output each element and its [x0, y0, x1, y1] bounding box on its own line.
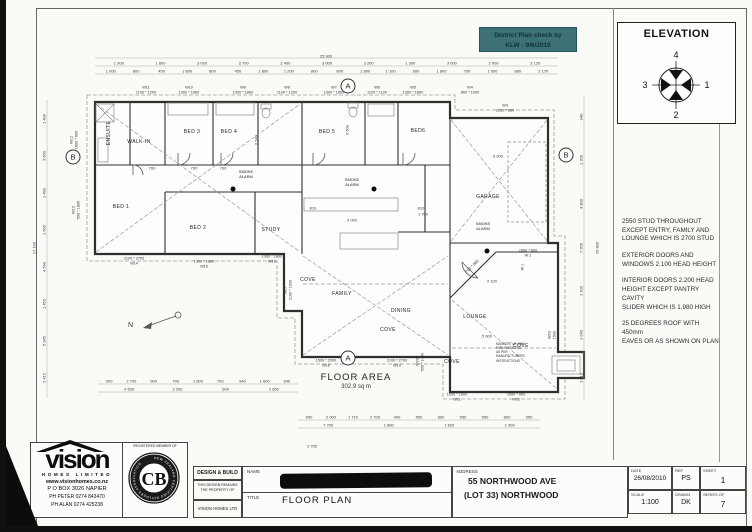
dimension-label: 2 705: [307, 444, 317, 449]
dimension-label: 900: [150, 379, 157, 384]
dimension-label: 1 600: [260, 379, 270, 384]
dimension-label: 540: [284, 379, 291, 384]
dimension-label: 3 600: [345, 125, 350, 135]
north-label: N: [128, 322, 133, 329]
drawing-title: FLOOR PLAN: [282, 495, 352, 506]
dimension-label: 25 900: [320, 54, 332, 59]
room-label: GARAGE: [476, 194, 500, 200]
dimension-label: 3 200: [364, 61, 374, 66]
dimension-label: 3 000: [447, 61, 457, 66]
dimension-label: 1 900: [505, 423, 515, 428]
dimension-label: 2 400: [280, 61, 290, 66]
room-label: BED 5: [319, 129, 335, 135]
window-label: 1500 * 2000 W18: [316, 358, 336, 367]
dimension-label: 810: [418, 206, 425, 211]
vision-phone-alan: PH ALAN 0274 425238: [32, 502, 122, 508]
room-label: ENSUITE: [106, 121, 112, 145]
dimension-label: 940: [579, 113, 584, 120]
date-value: 26/08/2010: [629, 475, 671, 482]
dimension-label: 800: [311, 69, 318, 74]
dimension-label: 1 000: [487, 69, 497, 74]
dimension-label: 2 000: [489, 61, 499, 66]
dimension-label: 600: [413, 69, 420, 74]
dimension-label: 3 120: [530, 61, 540, 66]
dimension-label: 450: [235, 69, 242, 74]
window-label: W9 1300 * 1800: [233, 85, 253, 94]
drawn-value: DK: [673, 499, 699, 506]
cb-monogram: CB: [141, 469, 166, 489]
room-label: BED6: [411, 128, 426, 134]
dimension-label: 3 600: [42, 150, 47, 160]
dimension-label: 1 000: [106, 69, 116, 74]
redacted-client-name: [280, 472, 432, 489]
series-cell: SERIES OF 7: [700, 490, 746, 514]
design-ownership-note: THIS DESIGN REMAINS THE PROPERTY OF: [193, 480, 242, 500]
window-label: W8 1100 * 1200: [277, 85, 297, 94]
floor-area-value: 302.9 sq m: [312, 384, 400, 390]
dimension-label: 790: [464, 69, 471, 74]
section-marker-a: A: [341, 79, 356, 94]
window-label: W11 1100 * 1200: [136, 85, 156, 94]
stamp-line2: KLW - 9/6/2010: [480, 41, 576, 51]
window-label: 1500 * 1500 W21: [447, 392, 467, 401]
address-line2: (LOT 33) NORTHWOOD: [464, 490, 558, 500]
dimension-label: 16 800: [595, 242, 600, 254]
dimension-label: 800: [209, 69, 216, 74]
dimension-label: 2 170: [538, 69, 548, 74]
dimension-label: 2 000: [326, 415, 336, 420]
window-label: W12 1800 * 600: [69, 131, 78, 149]
dimension-label: 2 540: [254, 135, 259, 145]
ref-value: PS: [673, 475, 699, 482]
dimension-label: 700: [217, 379, 224, 384]
room-label: WALK-IN: [127, 139, 150, 145]
address-label: ADDRESS: [456, 469, 478, 474]
window-label: 1300 * 1800 W16: [262, 254, 282, 263]
room-label: DINING: [391, 308, 411, 314]
dimension-label: 7 700: [323, 423, 333, 428]
dimension-label: 550: [482, 415, 489, 420]
vision-po-box: P O BOX 3026 NAPIER: [32, 486, 122, 492]
dimension-label: 2 700: [126, 379, 136, 384]
construction-notes: 2550 STUD THROUGHOUT EXCEPT ENTRY, FAMIL…: [622, 218, 722, 354]
dimension-label: 5 345: [42, 335, 47, 345]
vision-website: www.visionhomes.co.nz: [32, 479, 122, 485]
dimension-label: 17 190: [32, 242, 37, 254]
dimension-label: 1 800: [360, 69, 370, 74]
dimension-label: 7 205: [579, 242, 584, 252]
room-label: BED 1: [113, 204, 129, 210]
construction-note: INTERIOR DOORS 2.200 HEAD HEIGHT EXCEPT …: [622, 277, 722, 312]
dimension-label: 2 415: [42, 372, 47, 382]
sheet-label: SHEET: [703, 468, 716, 473]
scale-cell: SCALE 1:100: [628, 490, 672, 514]
dimension-label: 2 700: [370, 415, 380, 420]
smoke-alarm-dot: [372, 187, 377, 192]
elevation-number-left: 3: [642, 80, 647, 90]
dimension-label: 1 800: [193, 379, 203, 384]
window-label: W6 1100 * 1100: [367, 85, 387, 94]
window-label: W13 500 * 1800: [71, 201, 80, 219]
window-label: 1300 * 1800 W15: [194, 259, 214, 268]
dimension-label: 1 490: [42, 187, 47, 197]
sheet-value: 1: [701, 475, 745, 485]
scan-edge-bottom: [0, 526, 752, 532]
elevation-compass-icon: [618, 23, 735, 123]
floor-area-label: FLOOR AREA: [312, 372, 400, 383]
dimension-label: 2 650: [269, 387, 279, 392]
window-label: W20 500 * 1400: [415, 353, 424, 371]
construction-note: EXTERIOR DOORS AND WINDOWS 2.100 HEAD HE…: [622, 252, 722, 269]
window-label: 2100 * 2700 W14: [124, 256, 144, 265]
window-label: 1500 * 600 W 2: [519, 248, 537, 257]
series-label: SERIES OF: [703, 492, 724, 497]
room-label: COVE: [300, 277, 316, 283]
room-label: BED 2: [190, 225, 206, 231]
stamp-line1: District Plan check by: [480, 31, 576, 41]
dimension-label: 1 800: [384, 423, 394, 428]
district-plan-stamp: District Plan check by KLW - 9/6/2010: [479, 27, 577, 52]
dimension-label: 1 400: [42, 113, 47, 123]
certified-builders-logo: NEW ZEALAND CERTIFIED BUILDERS ASSOCIATI…: [128, 452, 180, 504]
dimension-label: 1 800: [182, 69, 192, 74]
section-marker-b: B: [66, 150, 81, 165]
smoke-alarm-dot: [231, 187, 236, 192]
vision-phone-peter: PH PETER 0274 843470: [32, 494, 122, 500]
window-label: W5 1300 * 1800: [403, 85, 423, 94]
registered-member-label: REGISTERED MEMBER OF: [124, 444, 186, 448]
dimension-label: 3 000: [197, 61, 207, 66]
smoke-alarm-label: SMOKE ALARM: [476, 221, 490, 231]
dimension-label: 1 200: [284, 69, 294, 74]
fireplace-note: MASPORT LE 4000 FIRE INSTALLED AS PER MA…: [496, 342, 528, 363]
ref-cell: REF PS: [672, 466, 700, 490]
drawn-label: DRAWN: [675, 492, 690, 497]
design-build-label: DESIGN & BUILD: [193, 466, 242, 480]
series-value: 7: [701, 499, 745, 509]
dimension-label: 540: [239, 379, 246, 384]
dimension-label: 4 000: [347, 218, 357, 223]
vision-logo-text: vision: [32, 446, 122, 472]
room-label: LOUNGE: [463, 314, 487, 320]
smoke-alarm-label: SMOKE ALARM: [239, 169, 253, 179]
room-label: COVE: [380, 327, 396, 333]
drawn-cell: DRAWN DK: [672, 490, 700, 514]
dimension-label: 3 200: [172, 387, 182, 392]
date-label: DATE: [631, 468, 641, 473]
room-label: BED 3: [184, 129, 200, 135]
dimension-label: 1 800: [155, 61, 165, 66]
room-label: COVE: [444, 359, 460, 365]
vision-subtitle: HOMES LIMITED: [32, 472, 122, 477]
dimension-label: 1 620: [444, 423, 454, 428]
dimension-label: 490: [394, 415, 401, 420]
name-title-divider: [242, 492, 452, 493]
dimension-label: 700: [172, 379, 179, 384]
dimension-label: 5 600: [482, 334, 492, 339]
dimension-label: 1 300: [405, 61, 415, 66]
dimension-label: 1 800: [436, 69, 446, 74]
window-label: W3 2100 * 860: [496, 103, 514, 112]
dimension-label: 5 900: [493, 154, 503, 159]
window-label: 2100 * 2700 W19: [387, 358, 407, 367]
elevation-number-bottom: 2: [673, 110, 678, 120]
date-cell: DATE 26/08/2010: [628, 466, 672, 490]
scale-value: 1:100: [629, 499, 671, 506]
elevation-number-right: 1: [704, 80, 709, 90]
window-label: W17 2100 * 1000: [283, 280, 292, 300]
dimension-label: 550: [460, 415, 467, 420]
floor-area-block: FLOOR AREA 302.9 sq m: [312, 372, 400, 390]
elevation-number-top: 4: [673, 50, 678, 60]
construction-note: 2550 STUD THROUGHOUT EXCEPT ENTRY, FAMIL…: [622, 218, 722, 244]
dimension-label: 1 800: [258, 69, 268, 74]
window-label: W4 800 * 1000: [461, 85, 479, 94]
dimension-label: 550: [526, 415, 533, 420]
smoke-alarm-dot: [485, 249, 490, 254]
section-marker-a: A: [341, 351, 356, 366]
ref-label: REF: [675, 468, 683, 473]
sheet-cell: SHEET 1: [700, 466, 746, 490]
dimension-label: 760: [220, 166, 227, 171]
name-label: NAME: [247, 469, 260, 474]
window-label: 1500 * 800 W22: [507, 392, 525, 401]
dimension-label: 760 * 960: [464, 258, 480, 274]
dimension-label: 1 200: [579, 286, 584, 296]
dimension-label: 900: [106, 379, 113, 384]
room-label: STUDY: [262, 227, 281, 233]
dimension-label: 800: [336, 69, 343, 74]
title-label: TITLE: [247, 495, 259, 500]
dimension-label: 800: [438, 415, 445, 420]
window-label: W 1: [521, 264, 526, 271]
dimension-label: 1 200: [579, 155, 584, 165]
dimension-label: 3 000: [322, 61, 332, 66]
drawing-sheet: ENSUITEWALK-INBED 1BED 2BED 3BED 4BED 5B…: [0, 0, 752, 532]
dimension-label: 760: [149, 166, 156, 171]
window-label: W23 1500: [547, 331, 556, 339]
dimension-label: 1 710: [348, 415, 358, 420]
construction-note: 25 DEGREES ROOF WITH 450mm EAVES OR AS S…: [622, 320, 722, 346]
dimension-label: 760: [191, 166, 198, 171]
dimension-label: 2 100: [487, 279, 497, 284]
dimension-label: 2 700: [239, 61, 249, 66]
dimension-label: 550: [416, 415, 423, 420]
design-owner-name: VISION HOMES LTD: [193, 500, 242, 518]
dimension-label: 4 590: [42, 261, 47, 271]
dimension-label: 450: [158, 69, 165, 74]
dimension-label: 810: [310, 206, 317, 211]
room-label: BED 4: [221, 129, 237, 135]
section-marker-b: B: [559, 148, 574, 163]
smoke-alarm-label: SMOKE ALARM: [345, 177, 359, 187]
scan-corner-artifact: [6, 446, 38, 526]
address-line1: 55 NORTHWOOD AVE: [468, 476, 556, 486]
dimension-label: 1 640: [579, 330, 584, 340]
elevation-key-box: ELEVATION 4 1 2 3: [617, 22, 736, 124]
dimension-label: 4 800: [579, 199, 584, 209]
scale-label: SCALE: [631, 492, 644, 497]
dimension-label: 1 810: [579, 373, 584, 383]
dimension-label: 1 100: [386, 69, 396, 74]
dimension-label: 600: [222, 387, 229, 392]
dimension-label: 4 500: [124, 387, 134, 392]
window-label: W10 1300 * 1800: [179, 85, 199, 94]
dimension-label: 1 450: [42, 298, 47, 308]
dimension-label: 1 600: [42, 224, 47, 234]
dimension-label: 860: [514, 69, 521, 74]
dimension-label: 800: [504, 415, 511, 420]
dimension-label: 600: [306, 415, 313, 420]
dimension-label: 1 700: [418, 212, 428, 217]
dimension-label: 1 900: [114, 61, 124, 66]
dimension-label: 800: [133, 69, 140, 74]
room-label: FAMILY: [332, 291, 352, 297]
